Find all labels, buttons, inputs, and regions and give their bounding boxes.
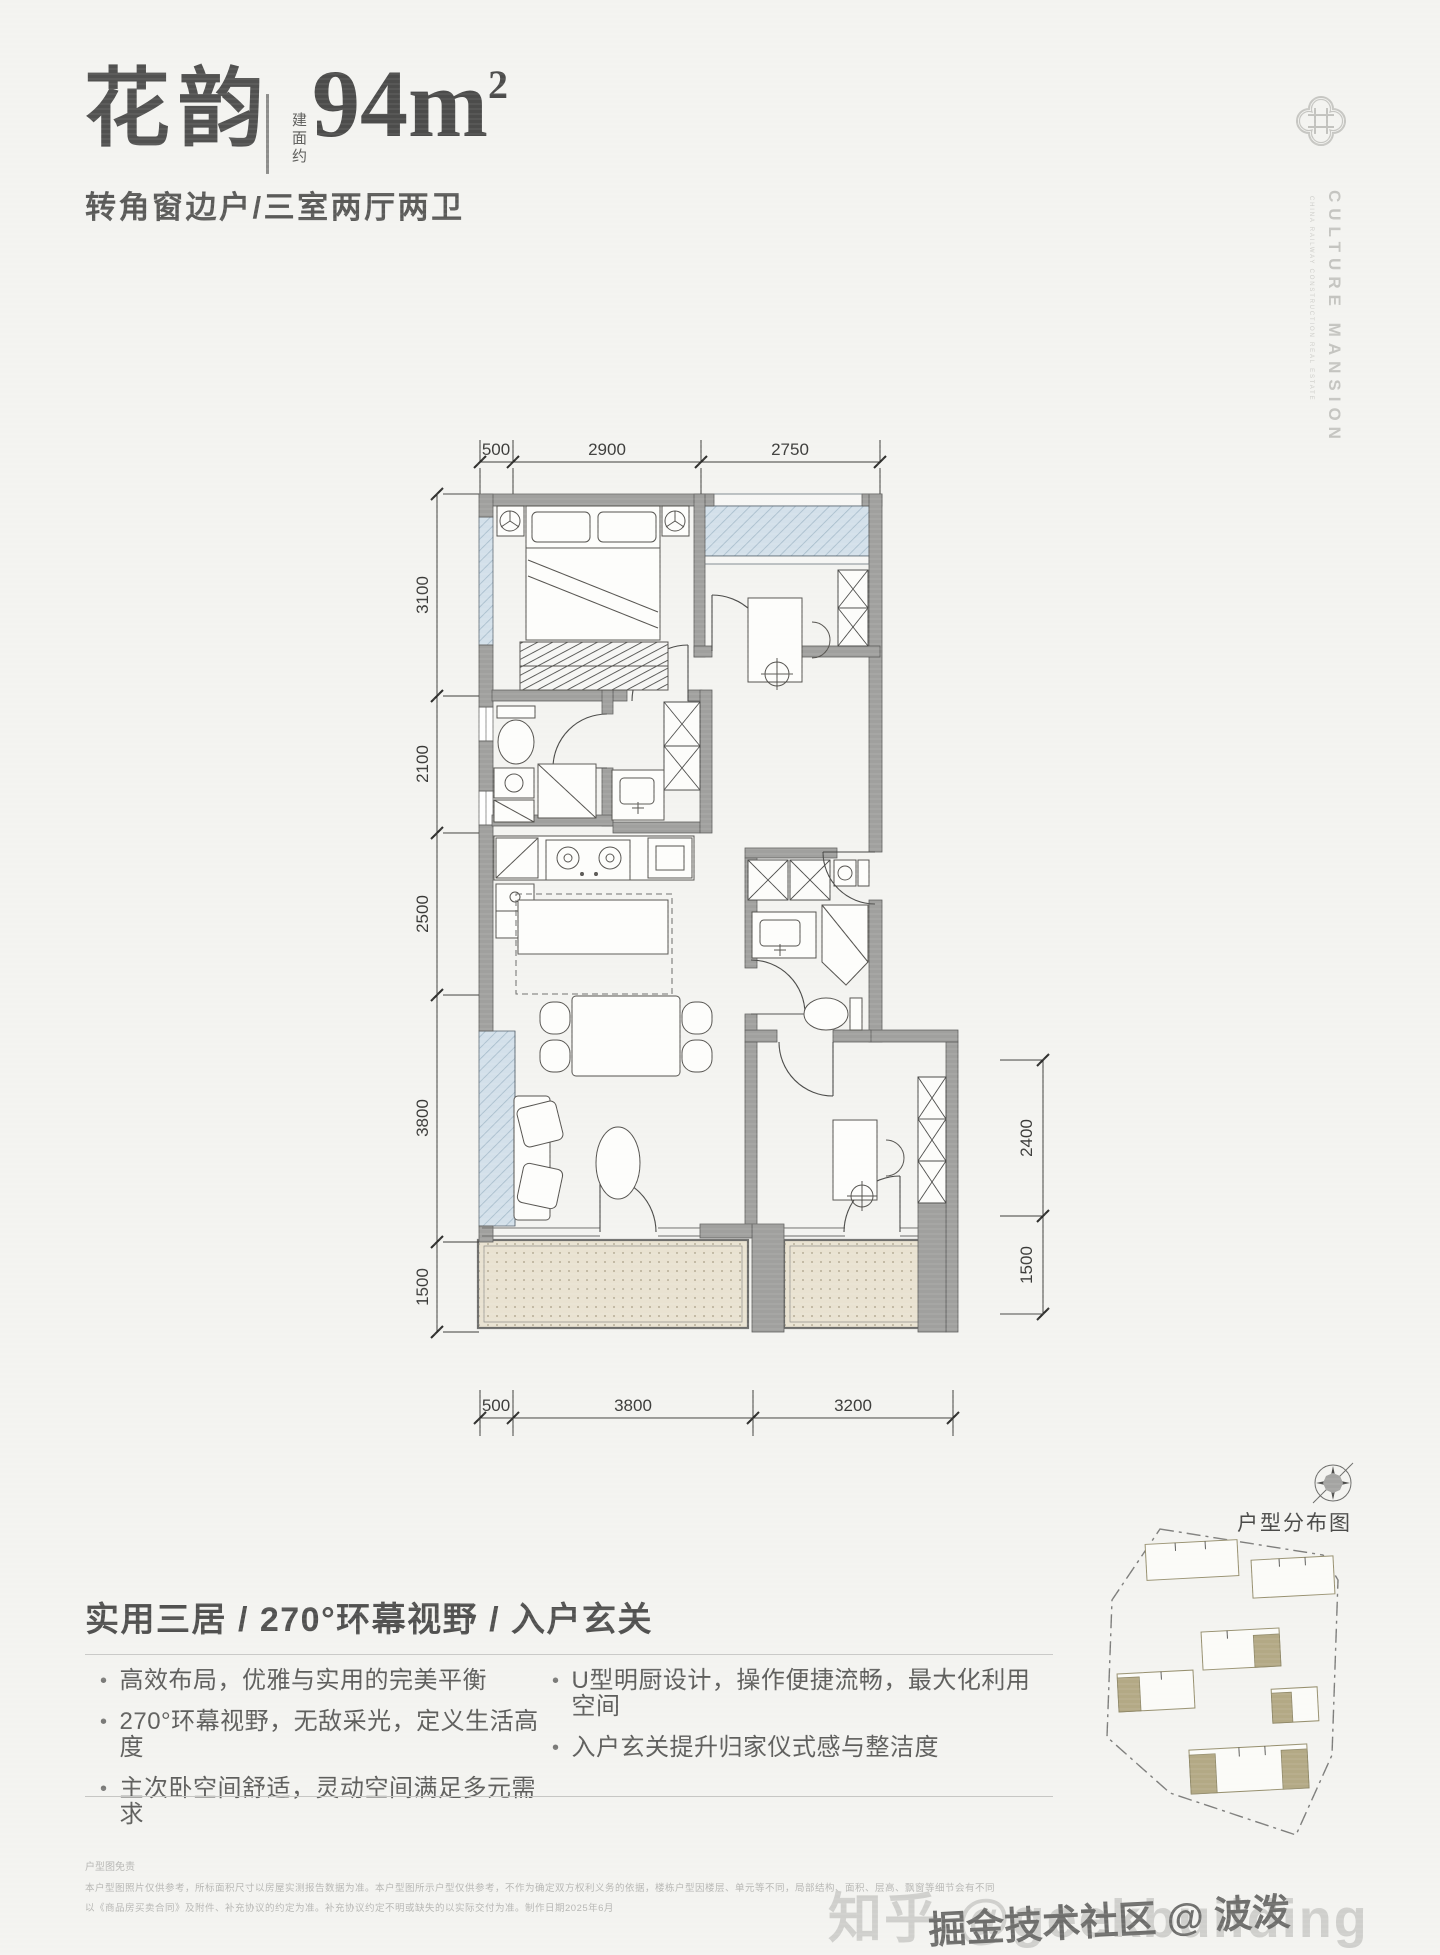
features-heading: 实用三居 / 270°环幕视野 / 入户玄关 (85, 1592, 653, 1641)
dimension-label: 2900 (588, 440, 626, 459)
dimension-label: 3200 (834, 1396, 872, 1415)
siteplan-map: 户型分布图 (1080, 1445, 1410, 1885)
quatrefoil-emblem-icon (1288, 88, 1354, 154)
feature-text: 主次卧空间舒适，灵动空间满足多元需求 (120, 1776, 540, 1828)
area-value: 94m2 (312, 56, 508, 152)
section-rule (85, 1796, 1053, 1797)
page-subtitle: 转角窗边户/三室两厅两卫 (85, 182, 465, 227)
bullet-icon: • (100, 1668, 108, 1694)
brand-name-vertical: CULTURE MANSION (1324, 190, 1344, 490)
list-item: •U型明厨设计，操作便捷流畅，最大化利用空间 (552, 1668, 1052, 1720)
feature-text: U型明厨设计，操作便捷流畅，最大化利用空间 (572, 1668, 1052, 1720)
page-title: 花韵 (84, 66, 272, 152)
dimension-label: 2500 (413, 895, 432, 933)
building-footprints (1117, 1540, 1335, 1794)
dimension-label: 1500 (413, 1268, 432, 1306)
features-list-right: •U型明厨设计，操作便捷流畅，最大化利用空间 •入户玄关提升归家仪式感与整洁度 (552, 1668, 1052, 1776)
bullet-icon: • (100, 1776, 108, 1828)
feature-text: 270°环幕视野，无敌采光，定义生活高度 (120, 1709, 540, 1761)
compass-icon (1313, 1463, 1353, 1503)
area-label-vertical: 建面约 (288, 112, 309, 166)
dimension-label: 500 (482, 440, 510, 459)
bathroom2-fixtures (752, 905, 868, 1030)
master-bed (497, 506, 689, 690)
floorplan-poster: 花韵 建面约 94m2 转角窗边户/三室两厅两卫 CULTURE MANSION… (0, 0, 1440, 1955)
bedroom3-desk (833, 1120, 904, 1211)
dimension-label: 1500 (1017, 1246, 1036, 1284)
list-item: •入户玄关提升归家仪式感与整洁度 (552, 1735, 1052, 1761)
dimension-label: 3800 (614, 1396, 652, 1415)
feature-text: 入户玄关提升归家仪式感与整洁度 (572, 1735, 940, 1761)
kitchen-counter (494, 836, 694, 994)
dimension-label: 2750 (771, 440, 809, 459)
hall-vanity (612, 770, 664, 820)
dimension-label: 500 (482, 1396, 510, 1415)
area-number: 94m (312, 50, 488, 157)
closets (664, 570, 946, 1203)
dining-set (540, 996, 712, 1076)
siteplan-label: 户型分布图 (1237, 1512, 1352, 1535)
floorplan-drawing: 500 2900 2750 3100 2100 2500 3800 1500 2… (360, 430, 1080, 1450)
bullet-icon: • (552, 1735, 560, 1761)
list-item: •高效布局，优雅与实用的完美平衡 (100, 1668, 540, 1694)
living-set (514, 1096, 640, 1220)
disclaimer-title: 户型图免责 (85, 1858, 135, 1873)
heading-rule (85, 1654, 1053, 1655)
bullet-icon: • (100, 1709, 108, 1761)
dimension-label: 3100 (413, 576, 432, 614)
dimension-label: 2100 (413, 745, 432, 783)
feature-text: 高效布局，优雅与实用的完美平衡 (120, 1668, 488, 1694)
list-item: •主次卧空间舒适，灵动空间满足多元需求 (100, 1776, 540, 1828)
bathroom1-fixtures (494, 706, 596, 822)
bullet-icon: • (552, 1668, 560, 1720)
title-divider (266, 94, 269, 174)
dimension-label: 3800 (413, 1099, 432, 1137)
list-item: •270°环幕视野，无敌采光，定义生活高度 (100, 1709, 540, 1761)
balcony-floor (478, 1240, 946, 1328)
dimension-label: 2400 (1017, 1119, 1036, 1157)
brand-tagline-vertical: CHINA RAILWAY CONSTRUCTION REAL ESTATE (1306, 196, 1314, 476)
area-superscript: 2 (488, 62, 508, 107)
study-desk (748, 598, 830, 690)
features-list-left: •高效布局，优雅与实用的完美平衡 •270°环幕视野，无敌采光，定义生活高度 •… (100, 1668, 540, 1843)
